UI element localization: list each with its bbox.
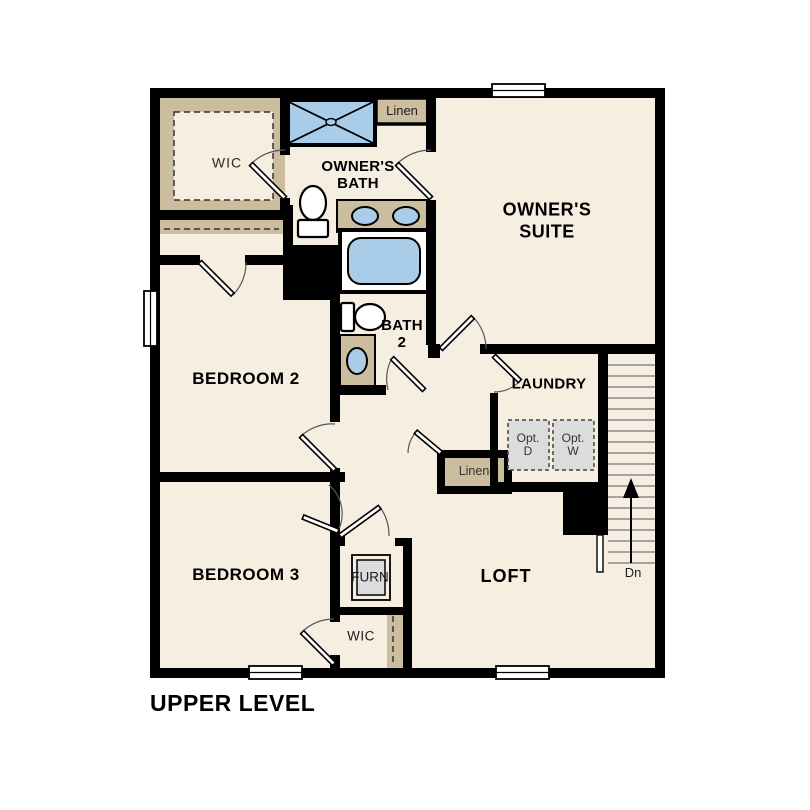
bathtub-icon: [340, 230, 428, 292]
floor-plan-svg: [0, 0, 810, 810]
bath2-label: BATH 2: [381, 317, 423, 352]
furnace-label: FURN: [351, 571, 389, 586]
wic-bottom-label: WIC: [347, 630, 375, 645]
stairs-down-label: Dn: [625, 566, 642, 580]
floor-plan-canvas: WIC OWNER'S BATH Linen OWNER'S SUITE BED…: [0, 0, 810, 810]
opt-dryer-label: Opt. D: [517, 432, 540, 458]
wic-bottom-shelf: [387, 613, 403, 668]
laundry-label: LAUNDRY: [512, 375, 587, 392]
shower-icon: [287, 100, 375, 145]
linen-top-label: Linen: [386, 104, 418, 118]
bedroom2-closet-shelf: [160, 220, 283, 234]
bedroom3-label: BEDROOM 3: [192, 566, 299, 584]
double-vanity-icon: [337, 200, 428, 232]
loft-label: LOFT: [481, 566, 532, 588]
stair-rail: [597, 535, 603, 572]
opt-washer-label: Opt. W: [562, 432, 585, 458]
vanity2-icon: [340, 335, 375, 387]
toilet2-icon: [341, 303, 385, 331]
owners-bath-label: OWNER'S BATH: [321, 158, 394, 193]
owners-suite-label: OWNER'S SUITE: [503, 199, 592, 242]
toilet-icon: [298, 186, 328, 237]
plan-title: UPPER LEVEL: [150, 690, 315, 717]
wic-top-label: WIC: [212, 155, 242, 170]
bedroom2-label: BEDROOM 2: [192, 370, 299, 388]
linen-bottom-label: Linen: [459, 465, 490, 479]
